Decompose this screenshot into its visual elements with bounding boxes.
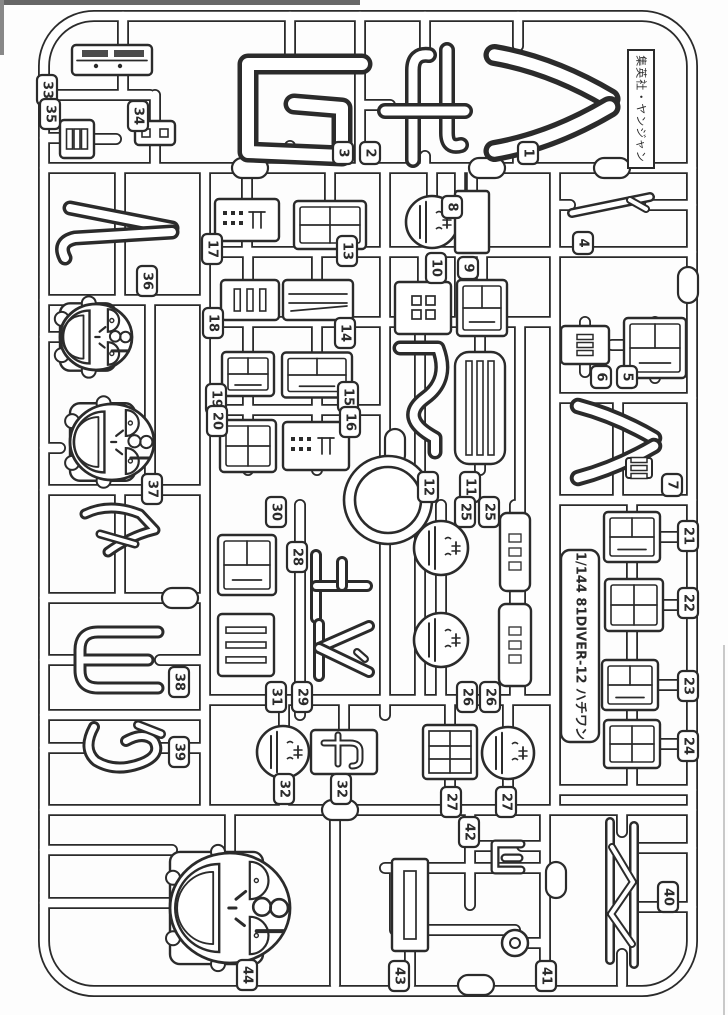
kit-name-label: 1/144 81DIVER-12 ハチワン [561,550,599,742]
part-number-tag: 8 [442,196,462,218]
part-number-tag: 27 [441,787,461,817]
part-number-tag: 9 [458,257,478,279]
part-number-tag: 37 [142,474,162,504]
part-number-tag: 38 [169,667,189,697]
part-32a [257,726,309,778]
svg-text:4: 4 [576,238,591,247]
svg-text:38: 38 [172,673,187,691]
part-6 [561,326,609,364]
svg-text:30: 30 [269,503,284,521]
part-number-tag: 2 [360,142,380,164]
part-number-tag: 27 [496,787,516,817]
svg-text:16: 16 [343,413,358,431]
part-27b [482,727,534,779]
part-11 [455,352,505,464]
part-number-tag: 36 [137,266,157,296]
svg-text:5: 5 [620,372,635,381]
svg-text:12: 12 [421,478,436,496]
part-number-tag: 6 [591,366,611,388]
part-number-tag: 31 [266,682,286,712]
svg-text:36: 36 [140,272,155,290]
part-number-tag: 39 [169,737,189,767]
part-number-tag: 5 [617,366,637,388]
part-number-tag: 32 [274,774,294,804]
part-number-tag: 32 [331,774,351,804]
part-number-tag: 17 [202,234,222,264]
part-25b [500,513,530,591]
part-10 [395,282,451,334]
svg-text:31: 31 [269,688,284,706]
part-number-tag: 25 [479,497,499,527]
part-number-tag: 24 [678,731,698,761]
svg-text:37: 37 [145,480,160,498]
svg-text:7: 7 [665,480,680,489]
part-number-tag: 7 [662,474,682,496]
part-26b [499,604,531,686]
part-number-tag: 3 [333,142,353,164]
part-number-tag: 14 [335,318,355,348]
part-17 [215,199,279,241]
svg-text:集英社・ヤンジャン: 集英社・ヤンジャン [635,55,649,162]
part-number-tag: 26 [457,682,477,712]
svg-text:44: 44 [240,966,255,984]
part-20 [220,420,276,472]
part-number-tag: 40 [658,882,678,912]
part-number-tag: 25 [455,497,475,527]
part-number-tag: 44 [237,960,257,990]
part-24 [604,720,660,768]
part-number-tag: 35 [40,99,60,129]
svg-text:11: 11 [463,478,478,496]
part-31 [218,614,274,676]
scan-edge-artifact [0,0,4,55]
svg-text:32: 32 [277,780,292,798]
svg-text:1/144 81DIVER-12 ハチワン: 1/144 81DIVER-12 ハチワン [573,552,588,740]
part-number-tag: 12 [418,472,438,502]
svg-text:17: 17 [205,240,220,258]
part-42 [495,844,521,870]
part-number-tag: 41 [536,961,556,991]
svg-text:43: 43 [392,967,407,985]
part-32b [311,730,377,774]
svg-text:22: 22 [681,594,696,612]
part-30 [218,535,276,595]
svg-text:42: 42 [462,823,477,841]
part-number-tag: 16 [340,407,360,437]
svg-text:25: 25 [482,503,497,521]
svg-text:18: 18 [206,314,221,332]
svg-text:10: 10 [429,259,444,277]
scan-edge-artifact [723,645,725,1015]
part-number-tag: 20 [207,406,227,436]
part-number-tag: 21 [678,521,698,551]
svg-text:8: 8 [445,202,460,211]
part-number-tag: 26 [480,682,500,712]
svg-text:23: 23 [681,677,696,695]
svg-text:34: 34 [131,107,146,125]
sprue-diagram: 1234567891011121314151617181920212223242… [0,0,728,1015]
part-number-tag: 18 [203,308,223,338]
part-number-tag: 4 [573,232,593,254]
part-19 [222,352,274,396]
svg-text:14: 14 [338,324,353,342]
svg-text:39: 39 [172,743,187,761]
svg-text:26: 26 [460,688,475,706]
svg-text:13: 13 [340,242,355,260]
part-number-tag: 23 [678,671,698,701]
part-35 [60,120,94,158]
part-9b [457,280,507,336]
svg-text:41: 41 [539,967,554,985]
part-number-tag: 22 [678,588,698,618]
part-41 [502,930,528,956]
part-21 [604,512,660,562]
svg-text:24: 24 [681,737,696,755]
part-number-tag: 10 [426,253,446,283]
part-number-tag: 30 [266,497,286,527]
part-26a [414,613,468,667]
svg-text:1: 1 [521,148,536,157]
part-18 [221,280,279,320]
svg-text:15: 15 [341,388,356,406]
svg-text:27: 27 [444,793,459,811]
part-23 [602,660,658,710]
svg-text:32: 32 [334,780,349,798]
svg-text:40: 40 [661,888,676,906]
part-number-tag: 28 [287,542,307,572]
svg-text:27: 27 [499,793,514,811]
svg-text:26: 26 [483,688,498,706]
part-number-tag: 13 [337,236,357,266]
part-27a [423,725,477,779]
svg-text:3: 3 [336,148,351,157]
part-14 [283,280,353,320]
publisher-label: 集英社・ヤンジャン [628,50,654,168]
svg-text:9: 9 [461,263,476,272]
svg-text:28: 28 [290,548,305,566]
part-33 [72,45,152,75]
part-25a [414,521,468,575]
part-number-tag: 29 [292,682,312,712]
scan-edge-artifact [0,0,360,5]
svg-text:6: 6 [594,372,609,381]
svg-text:21: 21 [681,527,696,545]
svg-text:20: 20 [210,412,225,430]
part-number-tag: 34 [128,101,148,131]
part-number-tag: 42 [459,817,479,847]
svg-text:33: 33 [40,81,55,99]
svg-text:2: 2 [363,148,378,157]
part-number-tag: 43 [389,961,409,991]
svg-text:29: 29 [295,688,310,706]
part-number-tag: 1 [518,142,538,164]
part-22 [605,579,663,631]
sprue-scan-page: 1234567891011121314151617181920212223242… [0,0,728,1015]
svg-text:25: 25 [458,503,473,521]
svg-text:35: 35 [43,105,58,123]
part-43 [392,859,428,951]
